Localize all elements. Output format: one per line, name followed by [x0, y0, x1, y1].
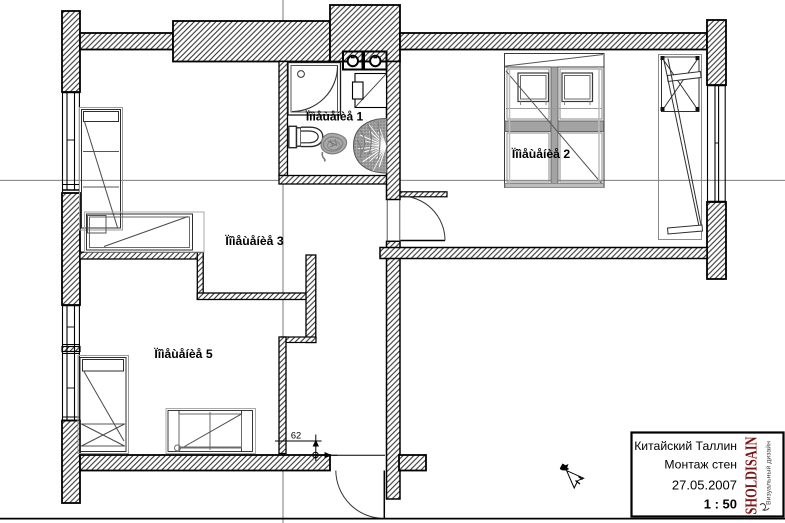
svg-text:Ïîìåùåíèå 2: Ïîìåùåíèå 2: [511, 146, 570, 161]
svg-text:27.05.2007: 27.05.2007: [672, 477, 737, 492]
svg-text:Ïîìåùåíèå 1: Ïîìåùåíèå 1: [305, 109, 364, 124]
svg-text:Ïîìåùåíèå 3: Ïîìåùåíèå 3: [224, 233, 283, 248]
svg-text:Монтаж стен: Монтаж стен: [664, 458, 737, 472]
svg-text:Китайский Таллин: Китайский Таллин: [634, 439, 737, 453]
svg-text:62: 62: [291, 430, 301, 440]
svg-text:Визуальный дизайн: Визуальный дизайн: [765, 440, 773, 505]
svg-text:SHOLDISAIN: SHOLDISAIN: [742, 436, 761, 514]
svg-text:1 : 50: 1 : 50: [704, 496, 737, 511]
svg-text:Ïîìåùåíèå 5: Ïîìåùåíèå 5: [153, 346, 212, 361]
